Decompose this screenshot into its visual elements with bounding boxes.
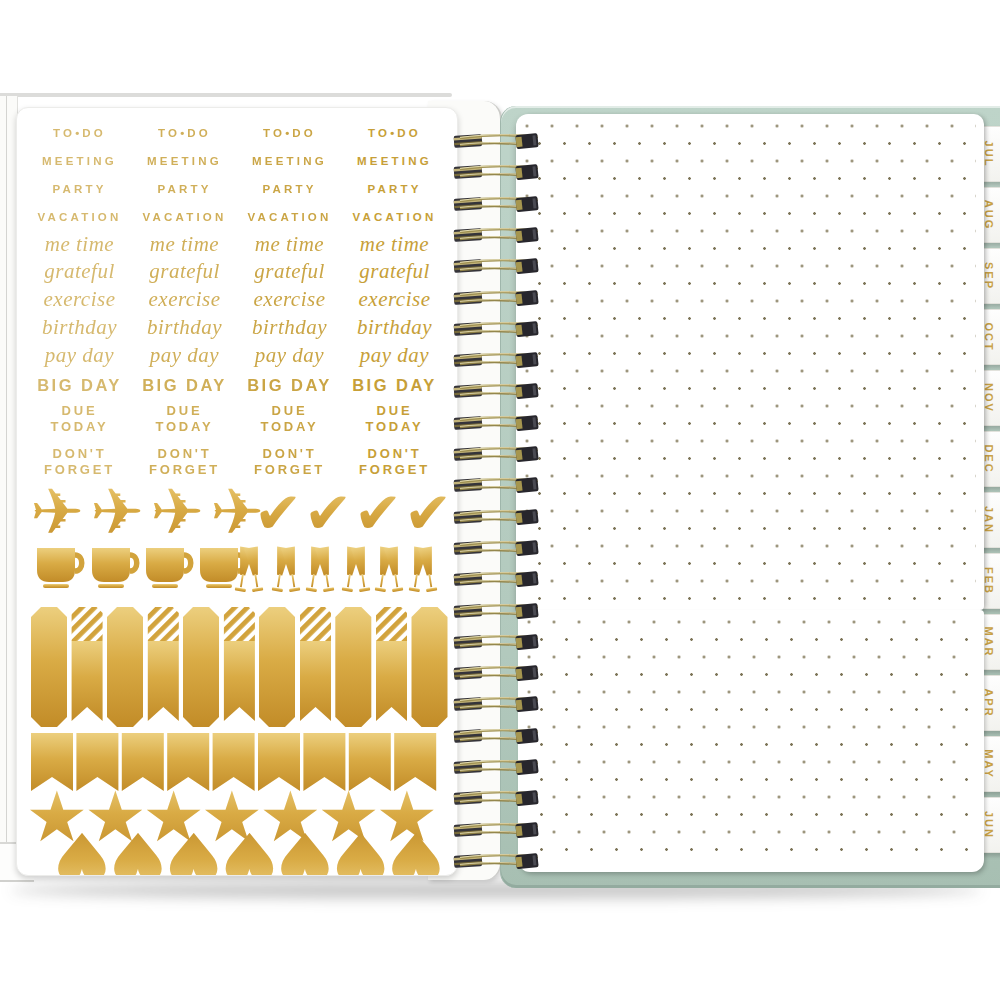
sticker-word-row-me-time: me timeme timeme timeme time	[27, 232, 447, 257]
svg-text:♥: ♥	[331, 817, 390, 876]
sticker-icons: ✈✈✈✈✔✔✔✔★★★★★★★♥♥♥♥♥♥♥	[17, 478, 457, 876]
spiral-coil-wire	[452, 756, 544, 778]
sticker-party: PARTY	[342, 183, 447, 195]
spiral-coil	[452, 819, 544, 841]
heart-inverted-sticker: ♥	[52, 817, 111, 876]
sticker-birthday: birthday	[342, 315, 447, 340]
sticker-due-today: DUE TODAY	[27, 403, 132, 435]
spiral-coil-wire	[452, 412, 544, 434]
svg-text:✔: ✔	[404, 479, 453, 547]
sticker-due-today: DUE TODAY	[132, 403, 237, 435]
spiral-coil-wire	[452, 600, 544, 622]
sticker-me-time: me time	[342, 232, 447, 257]
heart-inverted-sticker: ♥	[108, 817, 167, 876]
sticker-vacation: VACATION	[342, 211, 447, 223]
sticker-to-do: TO•DO	[132, 127, 237, 139]
month-tab-label: SEP	[983, 262, 995, 290]
heart-inverted-sticker: ♥	[275, 817, 334, 876]
spiral-coil	[452, 850, 544, 872]
spiral-coil-wire	[452, 193, 544, 215]
spiral-coil-wire	[452, 693, 544, 715]
spiral-coil	[452, 412, 544, 434]
sticker-word-row-party: PARTYPARTYPARTYPARTY	[27, 183, 447, 195]
airplane-sticker: ✈	[90, 478, 144, 549]
sticker-word-row-big-day: BIG DAYBIG DAYBIG DAYBIG DAY	[27, 376, 447, 395]
spiral-coil	[452, 600, 544, 622]
sticker-exercise: exercise	[342, 287, 447, 312]
spiral-coil	[452, 756, 544, 778]
checkmark-sticker: ✔	[354, 479, 403, 547]
svg-text:✈: ✈	[90, 478, 144, 549]
sticker-word-row-dont-forget: DON'T FORGETDON'T FORGETDON'T FORGETDON'…	[27, 446, 447, 478]
sticker-meeting: MEETING	[237, 155, 342, 167]
spiral-coil-wire	[452, 631, 544, 653]
spiral-coil	[452, 787, 544, 809]
spiral-coil	[452, 255, 544, 277]
sticker-big-day: BIG DAY	[237, 376, 342, 395]
sticker-meeting: MEETING	[27, 155, 132, 167]
dot-grid-page-top-sheet	[516, 114, 984, 610]
banner-striped-sticker	[300, 607, 331, 721]
checkmark-sticker: ✔	[404, 479, 453, 547]
spiral-coil	[452, 631, 544, 653]
spiral-coil	[452, 193, 544, 215]
sticker-exercise: exercise	[132, 287, 237, 312]
sticker-to-do: TO•DO	[27, 127, 132, 139]
dot-grid-pattern	[526, 618, 976, 864]
spiral-coil-wire	[452, 318, 544, 340]
sticker-meeting: MEETING	[132, 155, 237, 167]
spiral-coil-wire	[452, 130, 544, 152]
month-tab-label: NOV	[983, 383, 995, 413]
airplane-sticker: ✈	[30, 478, 84, 549]
heart-inverted-sticker: ♥	[386, 817, 445, 876]
coffee-cup-sticker	[92, 548, 137, 588]
spiral-coil	[452, 474, 544, 496]
checkmark-sticker: ✔	[304, 479, 353, 547]
airplane-sticker: ✈	[150, 478, 204, 549]
spiral-coil-wire	[452, 725, 544, 747]
spiral-coil	[452, 287, 544, 309]
sticker-pay-day: pay day	[132, 343, 237, 368]
sticker-exercise: exercise	[237, 287, 342, 312]
svg-text:♥: ♥	[164, 817, 223, 876]
spiral-coil-wire	[452, 819, 544, 841]
coffee-cup-sticker	[200, 548, 245, 588]
spiral-coil	[452, 349, 544, 371]
month-tab-label: OCT	[983, 322, 995, 351]
spiral-coil	[452, 161, 544, 183]
banner-solid-sticker	[183, 607, 219, 727]
sticker-due-today: DUE TODAY	[237, 403, 342, 435]
sticker-dont-forget: DON'T FORGET	[27, 446, 132, 478]
sticker-party: PARTY	[27, 183, 132, 195]
sticker-grateful: grateful	[237, 259, 342, 284]
sticker-dont-forget: DON'T FORGET	[237, 446, 342, 478]
spiral-coil-wire	[452, 474, 544, 496]
month-tab-label: APR	[983, 688, 995, 717]
svg-text:♥: ♥	[275, 817, 334, 876]
spiral-coil-wire	[452, 506, 544, 528]
champagne-toast-sticker	[407, 546, 439, 592]
sticker-word-row-birthday: birthdaybirthdaybirthdaybirthday	[27, 315, 447, 340]
sticker-word-row-pay-day: pay daypay daypay daypay day	[27, 343, 447, 368]
spiral-coil-wire	[452, 255, 544, 277]
planner-product-photo: JULAUGSEPOCTNOVDECJANFEBMARAPRMAYJUN TO•…	[0, 0, 1000, 1000]
spiral-coil	[452, 506, 544, 528]
banner-solid-sticker	[107, 607, 143, 727]
spiral-coil-wire	[452, 568, 544, 590]
spiral-coil	[452, 443, 544, 465]
month-tab-label: JUN	[983, 811, 995, 839]
svg-text:♥: ♥	[108, 817, 167, 876]
month-tab-label: JUL	[983, 141, 995, 168]
sticker-word-row-due-today: DUE TODAYDUE TODAYDUE TODAYDUE TODAY	[27, 403, 447, 435]
svg-text:♥: ♥	[386, 817, 445, 876]
month-tab-label: MAY	[983, 749, 995, 778]
spiral-coil-wire	[452, 287, 544, 309]
heart-inverted-sticker: ♥	[331, 817, 390, 876]
sticker-word-row-to-do: TO•DOTO•DOTO•DOTO•DO	[27, 127, 447, 139]
sticker-to-do: TO•DO	[237, 127, 342, 139]
svg-text:✈: ✈	[150, 478, 204, 549]
month-tab-label: MAR	[983, 626, 995, 657]
banner-striped-sticker	[376, 607, 407, 721]
spiral-coil	[452, 662, 544, 684]
sticker-vacation: VACATION	[27, 211, 132, 223]
sticker-due-today: DUE TODAY	[342, 403, 447, 435]
dot-grid-pattern	[524, 122, 976, 602]
coffee-cup-sticker	[146, 548, 191, 588]
spiral-coil	[452, 568, 544, 590]
month-tab-label: JAN	[983, 506, 995, 534]
banner-solid-sticker	[259, 607, 295, 727]
spiral-coil-wire	[452, 537, 544, 559]
sticker-meeting: MEETING	[342, 155, 447, 167]
sticker-word-row-meeting: MEETINGMEETINGMEETINGMEETING	[27, 155, 447, 167]
spiral-coil	[452, 130, 544, 152]
svg-text:♥: ♥	[52, 817, 111, 876]
spiral-coil	[452, 318, 544, 340]
sticker-birthday: birthday	[27, 315, 132, 340]
sticker-dont-forget: DON'T FORGET	[342, 446, 447, 478]
spiral-coil-wire	[452, 850, 544, 872]
svg-text:✔: ✔	[304, 479, 353, 547]
sticker-pay-day: pay day	[27, 343, 132, 368]
champagne-toast-sticker	[304, 546, 336, 592]
sticker-grateful: grateful	[132, 259, 237, 284]
month-tab-label: DEC	[983, 444, 995, 473]
champagne-toast-sticker	[340, 546, 372, 592]
sticker-grateful: grateful	[342, 259, 447, 284]
banner-striped-sticker	[148, 607, 179, 721]
sticker-word-row-exercise: exerciseexerciseexerciseexercise	[27, 287, 447, 312]
sticker-birthday: birthday	[237, 315, 342, 340]
dot-grid-page-under-sheet	[518, 610, 984, 872]
spiral-coil-wire	[452, 380, 544, 402]
sticker-pay-day: pay day	[342, 343, 447, 368]
spiral-coil-wire	[452, 161, 544, 183]
sticker-big-day: BIG DAY	[27, 376, 132, 395]
spiral-coil	[452, 537, 544, 559]
sticker-sheet-page: TO•DOTO•DOTO•DOTO•DOMEETINGMEETINGMEETIN…	[16, 107, 458, 876]
sticker-vacation: VACATION	[132, 211, 237, 223]
sticker-dont-forget: DON'T FORGET	[132, 446, 237, 478]
spiral-coil-wire	[452, 662, 544, 684]
banner-solid-sticker	[412, 607, 448, 727]
spiral-coil-wire	[452, 224, 544, 246]
svg-text:✔: ✔	[354, 479, 403, 547]
sticker-word-row-vacation: VACATIONVACATIONVACATIONVACATION	[27, 211, 447, 223]
month-tab-label: FEB	[983, 567, 995, 595]
sticker-me-time: me time	[237, 232, 342, 257]
champagne-toast-sticker	[373, 546, 405, 592]
sticker-big-day: BIG DAY	[132, 376, 237, 395]
sticker-vacation: VACATION	[237, 211, 342, 223]
spiral-coil	[452, 725, 544, 747]
spiral-coil-wire	[452, 787, 544, 809]
banner-solid-sticker	[335, 607, 371, 727]
spiral-coil	[452, 693, 544, 715]
sticker-word-row-grateful: gratefulgratefulgratefulgrateful	[27, 259, 447, 284]
spiral-coil	[452, 224, 544, 246]
sticker-exercise: exercise	[27, 287, 132, 312]
sticker-pay-day: pay day	[237, 343, 342, 368]
svg-text:✔: ✔	[254, 479, 303, 547]
svg-text:♥: ♥	[220, 817, 279, 876]
banner-striped-sticker	[224, 607, 255, 721]
spiral-coil-wire	[452, 443, 544, 465]
spiral-coil	[452, 380, 544, 402]
spiral-coil-wire	[452, 349, 544, 371]
left-cover-top-edge	[0, 93, 452, 97]
sticker-to-do: TO•DO	[342, 127, 447, 139]
sticker-big-day: BIG DAY	[342, 376, 447, 395]
sticker-me-time: me time	[27, 232, 132, 257]
month-tab-label: AUG	[983, 200, 995, 230]
heart-inverted-sticker: ♥	[220, 817, 279, 876]
sticker-grateful: grateful	[27, 259, 132, 284]
sticker-party: PARTY	[132, 183, 237, 195]
heart-inverted-sticker: ♥	[164, 817, 223, 876]
sticker-party: PARTY	[237, 183, 342, 195]
coffee-cup-sticker	[37, 548, 82, 588]
banner-striped-sticker	[72, 607, 103, 721]
svg-text:✈: ✈	[30, 478, 84, 549]
champagne-toast-sticker	[270, 546, 302, 592]
sticker-me-time: me time	[132, 232, 237, 257]
banner-solid-sticker	[31, 607, 67, 727]
checkmark-sticker: ✔	[254, 479, 303, 547]
sticker-birthday: birthday	[132, 315, 237, 340]
